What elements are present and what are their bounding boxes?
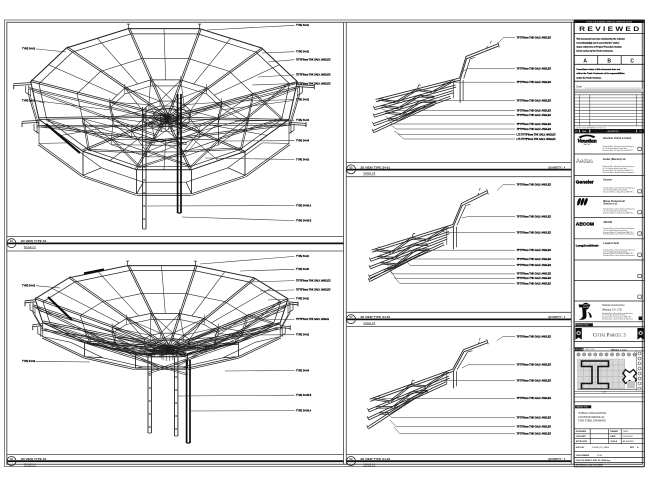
svg-text:AS SHOWN: AS SHOWN — [623, 440, 634, 443]
svg-text:DESIGNED: DESIGNED — [576, 431, 587, 433]
svg-text:Services Ltd.: Services Ltd. — [603, 203, 618, 206]
svg-text:R E V I E W E D: R E V I E W E D — [579, 26, 639, 33]
svg-text:75*75*6mm THK GALV. ANGLES: 75*75*6mm THK GALV. ANGLES — [517, 417, 552, 420]
svg-text:AECOM: AECOM — [603, 221, 612, 224]
svg-text:75*75*6mm THK GALV. ANGLES: 75*75*6mm THK GALV. ANGLES — [517, 184, 552, 187]
svg-text:TYPE S4-01: TYPE S4-01 — [296, 25, 310, 27]
svg-text:75*75*6mm THK GALV. ANGLES: 75*75*6mm THK GALV. ANGLES — [296, 59, 331, 62]
svg-text:TYPE S4-03: TYPE S4-03 — [296, 335, 310, 337]
svg-text:75*75*6mm THK GALV. ANGLES: 75*75*6mm THK GALV. ANGLES — [517, 231, 552, 234]
svg-text:75*75*6mm THK GALV. ANGLES: 75*75*6mm THK GALV. ANGLES — [517, 128, 552, 131]
svg-text:TYPE S4-02: TYPE S4-02 — [296, 52, 310, 54]
svg-text:75*75*6mm THK GALV. ANGLES: 75*75*6mm THK GALV. ANGLES — [517, 215, 552, 218]
svg-text:75*75*6mm THK GALV. ANGLES: 75*75*6mm THK GALV. ANGLES — [517, 380, 552, 383]
svg-text:SCALE 1:8: SCALE 1:8 — [24, 246, 36, 249]
svg-text:PUBLIC CIRCULATION: PUBLIC CIRCULATION — [578, 411, 606, 415]
svg-text:TYPE S4-04: TYPE S4-04 — [296, 141, 310, 143]
svg-text:TYPE S4-05 B: TYPE S4-05 B — [296, 220, 312, 222]
svg-text:75*75*6mm THK GALV. ANGLES: 75*75*6mm THK GALV. ANGLES — [517, 258, 552, 261]
svg-text:Aedas (Macau) Ltd.: Aedas (Macau) Ltd. — [603, 157, 627, 161]
svg-text:B: B — [607, 59, 611, 65]
svg-text:DRAWN: DRAWN — [610, 430, 618, 433]
svg-text:REV: REV — [630, 447, 635, 449]
svg-text:75*75*6mm THK GALV. ANGLES: 75*75*6mm THK GALV. ANGLES — [517, 99, 552, 102]
svg-text:PROJECT TITLE: PROJECT TITLE — [577, 325, 589, 327]
svg-text:CAD FILE NAME 3-SUB_FD_8N04.dw: CAD FILE NAME 3-SUB_FD_8N04.dwg — [576, 459, 611, 462]
svg-text:TYPE S4-04: TYPE S4-04 — [296, 120, 310, 122]
svg-text:75*75*6mm THK GALV. ANGLES: 75*75*6mm THK GALV. ANGLES — [517, 397, 552, 400]
svg-text:APPROVED: APPROVED — [576, 440, 588, 443]
svg-text:75*75*6mm THK GALV. ANGLES: 75*75*6mm THK GALV. ANGLES — [517, 433, 552, 436]
svg-text:SCALE 1:8: SCALE 1:8 — [363, 322, 375, 325]
svg-text:CHKD: CHKD — [623, 431, 629, 433]
svg-text:75*75*6mm THK GALV. ANGLES: 75*75*6mm THK GALV. ANGLES — [517, 123, 552, 126]
svg-text:Macau Professional: Macau Professional — [603, 201, 625, 203]
svg-text:SCALE: SCALE — [610, 440, 617, 443]
svg-text:(Macau) CO. LTD.: (Macau) CO. LTD. — [602, 308, 623, 311]
svg-text:75*75*6mm THK GALV. ANGLES: 75*75*6mm THK GALV. ANGLES — [296, 279, 331, 282]
svg-text:TYPE S4-03: TYPE S4-03 — [22, 361, 36, 363]
svg-text:under the Trade Contract.: under the Trade Contract. — [576, 76, 601, 79]
svg-text:75*75*6mm THK GALV. ANGLES: 75*75*6mm THK GALV. ANGLES — [517, 114, 552, 117]
svg-text:5.4 for action by the Trad: 5.4 for action by the Trade Contractor. — [576, 50, 613, 53]
svg-text:FOR STEEL DRAWING: FOR STEEL DRAWING — [578, 419, 605, 423]
svg-text:75*75*6mm THK GALV. ANGLES: 75*75*6mm THK GALV. ANGLES — [517, 426, 552, 429]
svg-text:75*75*6mm THK GALV. ANGLE: 75*75*6mm THK GALV. ANGLE — [296, 318, 329, 321]
svg-text:75*75*6mm THK GALV. ANGLES: 75*75*6mm THK GALV. ANGLES — [517, 273, 552, 276]
svg-text:Venetian Orient Limited: Venetian Orient Limited — [603, 136, 632, 140]
svg-text:A: A — [583, 59, 587, 65]
svg-text:status referred to in Proje: status referred to in Project Procedure … — [576, 46, 622, 49]
svg-text:75*75*6mm THK GALV. ANGLES: 75*75*6mm THK GALV. ANGLES — [517, 364, 552, 367]
svg-text:75*75*6mm THK GALV. ANGLES: 75*75*6mm THK GALV. ANGLES — [517, 249, 552, 252]
svg-text:Consultant review of this: Consultant review of this document does … — [576, 68, 620, 71]
svg-text:TYPE S4-05 A: TYPE S4-05 A — [296, 204, 311, 207]
svg-text:TYPE S4-02: TYPE S4-02 — [22, 101, 36, 103]
svg-text:75*75*6mm THK GALV. ANGLES: 75*75*6mm THK GALV. ANGLES — [517, 37, 552, 40]
svg-text:SCALE 1:8: SCALE 1:8 — [363, 172, 375, 175]
svg-text:75*75*6mm THK GALV. ANGLES: 75*75*6mm THK GALV. ANGLES — [517, 277, 552, 280]
svg-text:75*75*6mm THK GALV. ANGLES: 75*75*6mm THK GALV. ANGLES — [517, 81, 552, 84]
svg-text:TYPE S4-04: TYPE S4-04 — [296, 370, 310, 372]
svg-text:TYPE S4-03: TYPE S4-03 — [22, 49, 36, 51]
svg-text:TYPE S4-03: TYPE S4-03 — [22, 286, 36, 288]
svg-text:TYPE S4-05 A: TYPE S4-05 A — [296, 409, 311, 412]
svg-text:Consultant(s)(s) and is acc: Consultant(s)(s) and is accorded the 'st… — [576, 42, 620, 45]
svg-text:TYPE S4-05 B: TYPE S4-05 B — [296, 395, 312, 397]
svg-text:DWG NO: DWG NO — [576, 447, 585, 449]
svg-text:3-SUB_FD_8N04: 3-SUB_FD_8N04 — [592, 447, 610, 449]
svg-text:FOUNTAIN DETAIL 01: FOUNTAIN DETAIL 01 — [578, 415, 605, 419]
svg-text:75*75*6mm THK GALV. ANGLES: 75*75*6mm THK GALV. ANGLES — [517, 335, 552, 338]
svg-text:Venetian: Venetian — [577, 139, 596, 145]
svg-text:Aedas: Aedas — [576, 159, 593, 165]
svg-text:75*75*6mm THK GALV. ANGLES: 75*75*6mm THK GALV. ANGLES — [517, 264, 552, 267]
svg-text:DATE: DATE — [610, 435, 616, 438]
svg-text:75*75*6mm THK GALV. ANGLES: 75*75*6mm THK GALV. ANGLES — [517, 283, 552, 286]
svg-text:This document has been review: This document has been reviewed by the r… — [576, 38, 625, 41]
svg-text:AECOM: AECOM — [576, 221, 594, 227]
svg-text:75*75*6mm THK GALV. ANGLES: 75*75*6mm THK GALV. ANGLES — [296, 289, 331, 292]
svg-text:75*75*6mm THK GALV. ANGLES: 75*75*6mm THK GALV. ANGLES — [296, 82, 331, 85]
svg-text:Date :: Date : — [576, 85, 583, 89]
svg-text:75*75*6mm THK GALV. ANGLES: 75*75*6mm THK GALV. ANGLES — [296, 74, 331, 77]
svg-text:75*75*6mm THK GALV. ANGLES: 75*75*6mm THK GALV. ANGLES — [517, 109, 552, 112]
svg-text:Langdon&Seah: Langdon&Seah — [576, 243, 599, 247]
svg-text:L75 75*75*6mm THK GALV. ANGLES: L75 75*75*6mm THK GALV. ANGLES — [517, 138, 556, 141]
svg-text:75*75*6mm THK GALV. ANGLES: 75*75*6mm THK GALV. ANGLES — [517, 67, 552, 70]
svg-text:REFERENCE CAD FILE NAME: REFERENCE CAD FILE NAME — [576, 463, 604, 466]
svg-text:SCALE 1:8: SCALE 1:8 — [363, 464, 375, 467]
svg-text:09/10/2015: 09/10/2015 — [623, 436, 634, 438]
svg-text:TYPE S4-02: TYPE S4-02 — [296, 298, 310, 300]
svg-text:Hsabia Construction: Hsabia Construction — [602, 304, 625, 307]
svg-text:relieve the Trade Contractor: relieve the Trade Contractor of its resp… — [576, 72, 625, 75]
svg-text:CHECKED: CHECKED — [576, 436, 586, 438]
svg-text:TYPE S4-03: TYPE S4-03 — [296, 99, 310, 101]
svg-text:Gensler: Gensler — [576, 179, 594, 185]
svg-text:SCALE 1:8: SCALE 1:8 — [24, 464, 36, 467]
svg-text:TYPE S4-06: TYPE S4-06 — [296, 269, 310, 271]
svg-text:TYPE S4-03: TYPE S4-03 — [296, 159, 310, 161]
svg-text:TYPE S4-01: TYPE S4-01 — [296, 256, 310, 258]
svg-text:C: C — [630, 59, 634, 65]
svg-text:Gensler: Gensler — [603, 180, 612, 182]
svg-text:Langdon Seah: Langdon Seah — [603, 243, 619, 245]
svg-text:JOB NUMBER: JOB NUMBER — [576, 455, 590, 457]
svg-text:L75 75*75*6mm THK GALV. ANGLES: L75 75*75*6mm THK GALV. ANGLES — [517, 133, 556, 136]
